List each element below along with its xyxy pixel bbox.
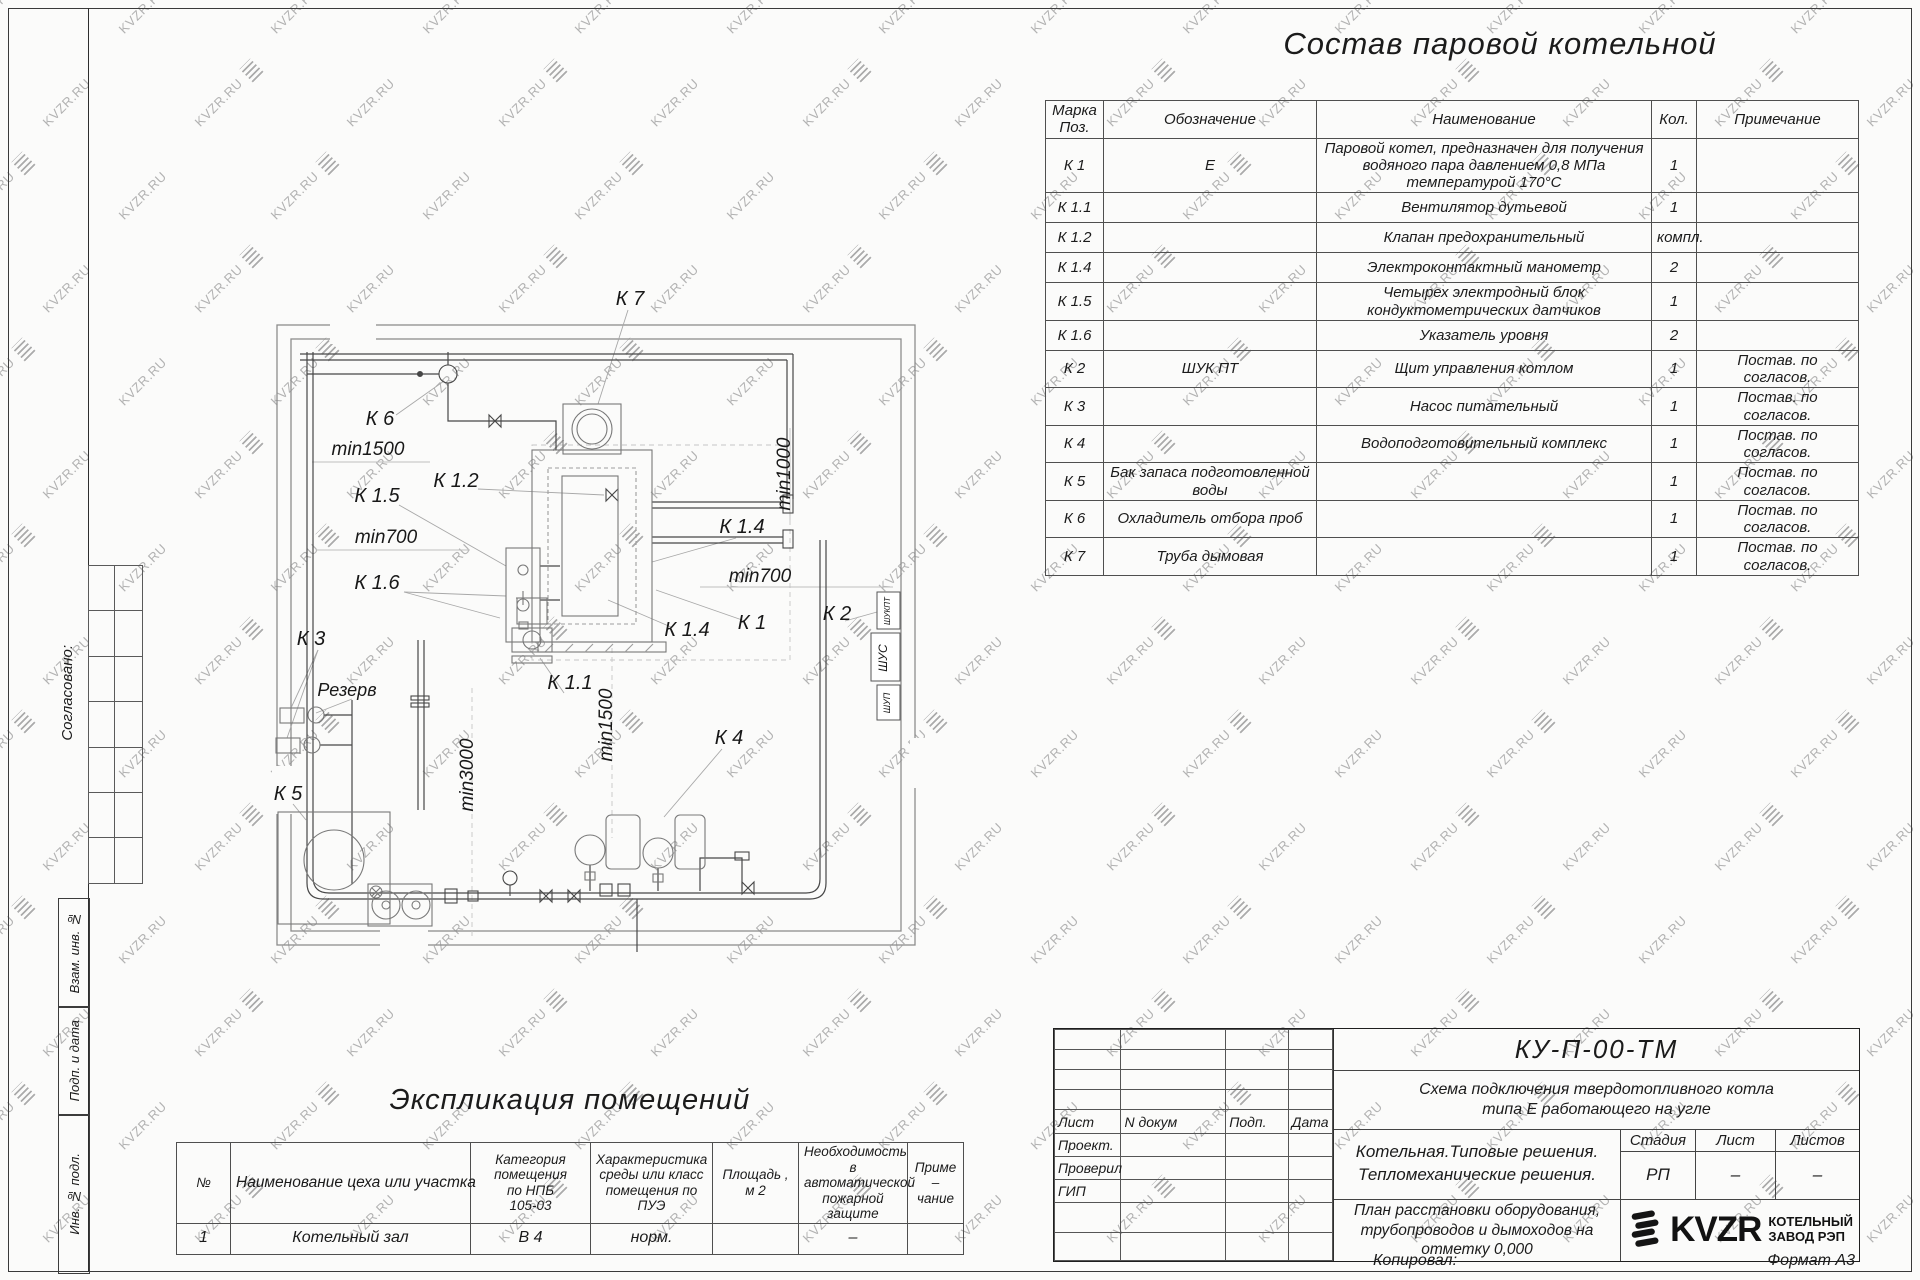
equipment-cell-note <box>1697 320 1859 350</box>
title-block-revision-grid: Лист N докум Подп. Дата Проект. Проверил… <box>1054 1029 1334 1261</box>
stage-values: РП – – <box>1621 1152 1859 1198</box>
equipment-cell-note: Постав. по согласов. <box>1697 500 1859 538</box>
equipment-cell-name: Вентилятор дутьевой <box>1317 193 1652 223</box>
equipment-cell-mark: К 7 <box>1046 538 1104 576</box>
cabinet-label: ШУКПТ <box>883 596 892 625</box>
equipment-cell-designation <box>1104 425 1317 463</box>
equipment-cell-designation: Е <box>1104 138 1317 193</box>
col-sheet: Лист <box>1055 1110 1121 1134</box>
leader-lines <box>287 310 877 820</box>
boiler <box>532 450 652 642</box>
plan-labels: К 7К 6min1500К 1.2К 1.5min700К 1.6К 3Рез… <box>274 290 892 811</box>
logo-caption: КОТЕЛЬНЫЙ ЗАВОД РЭП <box>1768 1215 1853 1245</box>
equipment-cell-designation <box>1104 223 1317 253</box>
cabinet-label: ШУС <box>876 644 890 672</box>
rooms-cell: 1 <box>177 1223 231 1254</box>
equipment-cell-note: Постав. по согласов. <box>1697 425 1859 463</box>
rooms-cell: В 4 <box>471 1223 591 1254</box>
equipment-cell-mark: К 1.4 <box>1046 253 1104 283</box>
equipment-cell-designation <box>1104 283 1317 321</box>
margin-box-inv: Инв. № подл. <box>58 1114 90 1274</box>
col-category: Категория помещения по НПБ 105-03 <box>471 1143 591 1224</box>
document-code: КУ-П-00-ТМ <box>1334 1029 1859 1071</box>
signature-cell <box>88 837 114 882</box>
chimney <box>572 409 612 449</box>
plan-label: К 4 <box>715 727 743 749</box>
equipment-cell-qty: 1 <box>1652 350 1697 388</box>
equipment-cell-mark: К 3 <box>1046 388 1104 426</box>
plan-label: min700 <box>355 527 418 548</box>
col-fire-protection: Необходимость в автоматической пожарной … <box>799 1143 908 1224</box>
equipment-cell-note <box>1697 138 1859 193</box>
equipment-cell-mark: К 1.5 <box>1046 283 1104 321</box>
plan-label: К 6 <box>366 408 395 430</box>
rooms-header-row: № Наименование цеха или участка Категори… <box>177 1143 964 1224</box>
plan-label: К 7 <box>616 290 645 310</box>
equipment-cell-designation <box>1104 253 1317 283</box>
equipment-cell-designation: Охладитель отбора проб <box>1104 500 1317 538</box>
equipment-cell-mark: К 6 <box>1046 500 1104 538</box>
signature-cell <box>88 656 114 701</box>
water-tank <box>278 812 390 924</box>
equipment-cell-name: Водоподготовительный комплекс <box>1317 425 1652 463</box>
equipment-cell-qty: 1 <box>1652 463 1697 501</box>
signature-cell <box>114 565 142 610</box>
equipment-cell-qty: 1 <box>1652 388 1697 426</box>
equipment-cell-designation <box>1104 388 1317 426</box>
plan-label: К 2 <box>823 603 851 625</box>
equipment-table-row: К 1.6Указатель уровня2 <box>1046 320 1859 350</box>
col-date: Дата <box>1288 1110 1332 1134</box>
equipment-cell-qty: 1 <box>1652 193 1697 223</box>
equipment-cell-mark: К 1.2 <box>1046 223 1104 253</box>
rooms-cell <box>713 1223 799 1254</box>
col-designation: Обозначение <box>1104 101 1317 139</box>
equipment-cell-qty: 1 <box>1652 500 1697 538</box>
equipment-table-row: К 1.5Четырех электродный блок кондуктоме… <box>1046 283 1859 321</box>
equipment-cell-qty: 1 <box>1652 138 1697 193</box>
rooms-table-row: 1Котельный залВ 4норм.– <box>177 1223 964 1254</box>
equipment-cell-designation: Бак запаса подготовленной воды <box>1104 463 1317 501</box>
signature-cell <box>114 656 142 701</box>
drawing-sheet: KVZR.RUKVZR.RUKVZR.RUKVZR.RUKVZR.RUKVZR.… <box>0 0 1920 1280</box>
cabinet-label: ШУП <box>882 692 892 713</box>
plan-label: К 5 <box>274 783 303 805</box>
col-name: Наименование <box>1317 101 1652 139</box>
equipment-cell-designation <box>1104 193 1317 223</box>
rooms-table-title: Экспликация помещений <box>220 1084 920 1117</box>
equipment-table-row: К 5Бак запаса подготовленной воды1Постав… <box>1046 463 1859 501</box>
plan-label: К 1.1 <box>547 672 592 694</box>
equipment-cell-qty: 1 <box>1652 425 1697 463</box>
equipment-cell-mark: К 4 <box>1046 425 1104 463</box>
col-num: № <box>177 1143 231 1224</box>
signature-grid <box>88 565 143 884</box>
equipment-cell-qty: компл. <box>1652 223 1697 253</box>
copied-by-label: Копировал: <box>1373 1252 1457 1270</box>
equipment-cell-mark: К 5 <box>1046 463 1104 501</box>
equipment-cell-mark: К 1 <box>1046 138 1104 193</box>
equipment-cell-note <box>1697 253 1859 283</box>
equipment-table-row: К 3Насос питательный1Постав. по согласов… <box>1046 388 1859 426</box>
equipment-table: Марка Поз. Обозначение Наименование Кол.… <box>1045 100 1859 576</box>
equipment-cell-designation: Труба дымовая <box>1104 538 1317 576</box>
equipment-table-row: К 7Труба дымовая1Постав. по согласов. <box>1046 538 1859 576</box>
equipment-cell-qty: 1 <box>1652 283 1697 321</box>
equipment-cell-name <box>1317 463 1652 501</box>
format-label: Формат А3 <box>1750 1252 1855 1270</box>
signature-cell <box>88 610 114 655</box>
plan-label: К 1.5 <box>354 485 400 507</box>
col-qty: Кол. <box>1652 101 1697 139</box>
col-area: Площадь , м 2 <box>713 1143 799 1224</box>
stage-value: РП <box>1621 1152 1696 1198</box>
equipment-cell-mark: К 1.6 <box>1046 320 1104 350</box>
col-note: Приме – чание <box>908 1143 964 1224</box>
plan-label: К 1.6 <box>354 572 400 594</box>
stamp-header-row: Лист N докум Подп. Дата <box>1055 1110 1333 1134</box>
equipment-cell-qty: 2 <box>1652 253 1697 283</box>
plan-label: min700 <box>729 566 792 587</box>
equipment-cell-name: Электроконтактный манометр <box>1317 253 1652 283</box>
signature-cell <box>88 792 114 837</box>
equipment-cell-note <box>1697 223 1859 253</box>
equipment-cell-designation: ШУК ПТ <box>1104 350 1317 388</box>
equipment-cell-note: Постав. по согласов. <box>1697 350 1859 388</box>
margin-box-podp: Подп. и дата <box>58 1006 90 1116</box>
plan-label: Резерв <box>317 680 376 700</box>
signature-cell <box>114 792 142 837</box>
rooms-cell: Котельный зал <box>231 1223 471 1254</box>
margin-box-vzam: Взам. инв. № <box>58 898 90 1008</box>
plan-label: min1000 <box>774 437 795 510</box>
floor-plan: К 7К 6min1500К 1.2К 1.5min700К 1.6К 3Рез… <box>250 290 960 990</box>
equipment-cell-note <box>1697 193 1859 223</box>
plan-label: К 1.2 <box>433 470 478 492</box>
plan-label: min1500 <box>332 439 405 460</box>
equipment-table-row: К 6Охладитель отбора проб1Постав. по сог… <box>1046 500 1859 538</box>
col-mark: Марка Поз. <box>1046 101 1104 139</box>
document-title: Схема подключения твердотопливного котла… <box>1334 1071 1859 1130</box>
equipment-cell-name: Насос питательный <box>1317 388 1652 426</box>
equipment-table-row: К 1.1Вентилятор дутьевой1 <box>1046 193 1859 223</box>
role-checked: Проверил <box>1055 1157 1121 1180</box>
stage-header: Стадия Лист Листов <box>1621 1130 1859 1152</box>
role-gip: ГИП <box>1055 1180 1121 1203</box>
rooms-cell <box>908 1223 964 1254</box>
signature-cell <box>114 747 142 792</box>
signature-cell <box>114 701 142 746</box>
signature-cell <box>88 565 114 610</box>
logo-text: KVZR <box>1670 1210 1761 1250</box>
feed-pump <box>280 708 304 723</box>
rooms-table: № Наименование цеха или участка Категори… <box>176 1142 964 1255</box>
water-treatment-gauge <box>575 835 605 865</box>
title-block: Лист N докум Подп. Дата Проект. Проверил… <box>1053 1028 1860 1262</box>
plan-label: К 1 <box>738 612 766 634</box>
col-sign: Подп. <box>1226 1110 1288 1134</box>
role-project: Проект. <box>1055 1134 1121 1157</box>
plan-label: min3000 <box>457 738 478 811</box>
equipment-cell-name: Указатель уровня <box>1317 320 1652 350</box>
equipment-shapes <box>276 404 705 926</box>
col-room-name: Наименование цеха или участка <box>231 1143 471 1224</box>
equipment-cell-note: Постав. по согласов. <box>1697 463 1859 501</box>
equipment-cell-name <box>1317 538 1652 576</box>
equipment-table-row: К 1ЕПаровой котел, предназначен для полу… <box>1046 138 1859 193</box>
equipment-cell-name: Клапан предохранительный <box>1317 223 1652 253</box>
equipment-cell-name: Щит управления котлом <box>1317 350 1652 388</box>
equipment-cell-note <box>1697 283 1859 321</box>
equipment-cell-mark: К 1.1 <box>1046 193 1104 223</box>
equipment-cell-note: Постав. по согласов. <box>1697 538 1859 576</box>
plan-label: К 1.4 <box>719 516 764 538</box>
signature-cell <box>114 610 142 655</box>
filter-vessel <box>606 815 640 869</box>
equipment-table-row: К 4Водоподготовительный комплекс1Постав.… <box>1046 425 1859 463</box>
equipment-cell-name: Паровой котел, предназначен для получени… <box>1317 138 1652 193</box>
project-name: Котельная.Типовые решения. Тепломеханиче… <box>1334 1130 1621 1198</box>
equipment-cell-name: Четырех электродный блок кондуктометриче… <box>1317 283 1652 321</box>
signature-cell <box>88 701 114 746</box>
sheet-value: – <box>1696 1152 1776 1198</box>
signature-cell <box>114 837 142 882</box>
signature-cell <box>88 747 114 792</box>
equipment-cell-name <box>1317 500 1652 538</box>
sheets-value: – <box>1776 1152 1859 1198</box>
equipment-cell-mark: К 2 <box>1046 350 1104 388</box>
approved-label: Согласовано: <box>54 598 80 788</box>
plan-label: К 1.4 <box>664 619 709 641</box>
equipment-header-row: Марка Поз. Обозначение Наименование Кол.… <box>1046 101 1859 139</box>
plan-label: К 3 <box>297 628 325 650</box>
col-doc: N докум <box>1121 1110 1226 1134</box>
equipment-cell-qty: 1 <box>1652 538 1697 576</box>
equipment-cell-note: Постав. по согласов. <box>1697 388 1859 426</box>
equipment-table-row: К 1.2Клапан предохранительныйкомпл. <box>1046 223 1859 253</box>
equipment-cell-qty: 2 <box>1652 320 1697 350</box>
kvzr-logo-icon <box>1627 1209 1663 1251</box>
equipment-table-row: К 2ШУК ПТЩит управления котлом1Постав. п… <box>1046 350 1859 388</box>
rooms-cell: норм. <box>591 1223 713 1254</box>
reserve-pump <box>276 738 300 753</box>
equipment-table-title: Состав паровой котельной <box>1120 26 1880 62</box>
equipment-table-row: К 1.4Электроконтактный манометр2 <box>1046 253 1859 283</box>
col-note: Примечание <box>1697 101 1859 139</box>
equipment-cell-designation <box>1104 320 1317 350</box>
plan-label: min1500 <box>596 688 617 761</box>
col-environment: Характеристика среды или класс помещения… <box>591 1143 713 1224</box>
rooms-cell: – <box>799 1223 908 1254</box>
